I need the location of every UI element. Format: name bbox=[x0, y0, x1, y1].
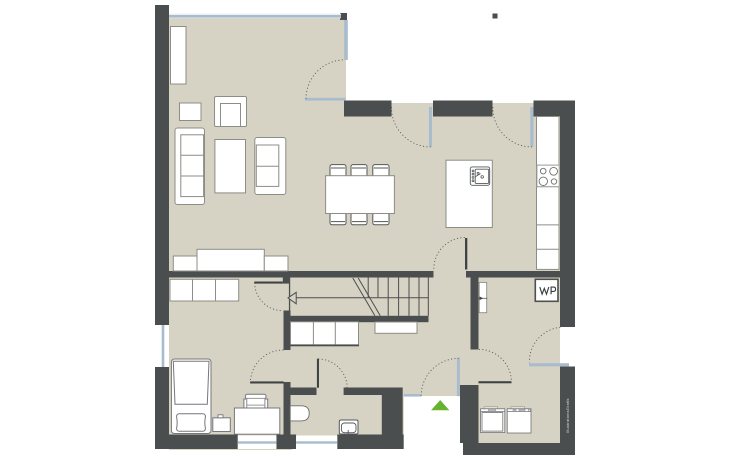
svg-text:IllustrationsGrafik: IllustrationsGrafik bbox=[565, 398, 570, 433]
